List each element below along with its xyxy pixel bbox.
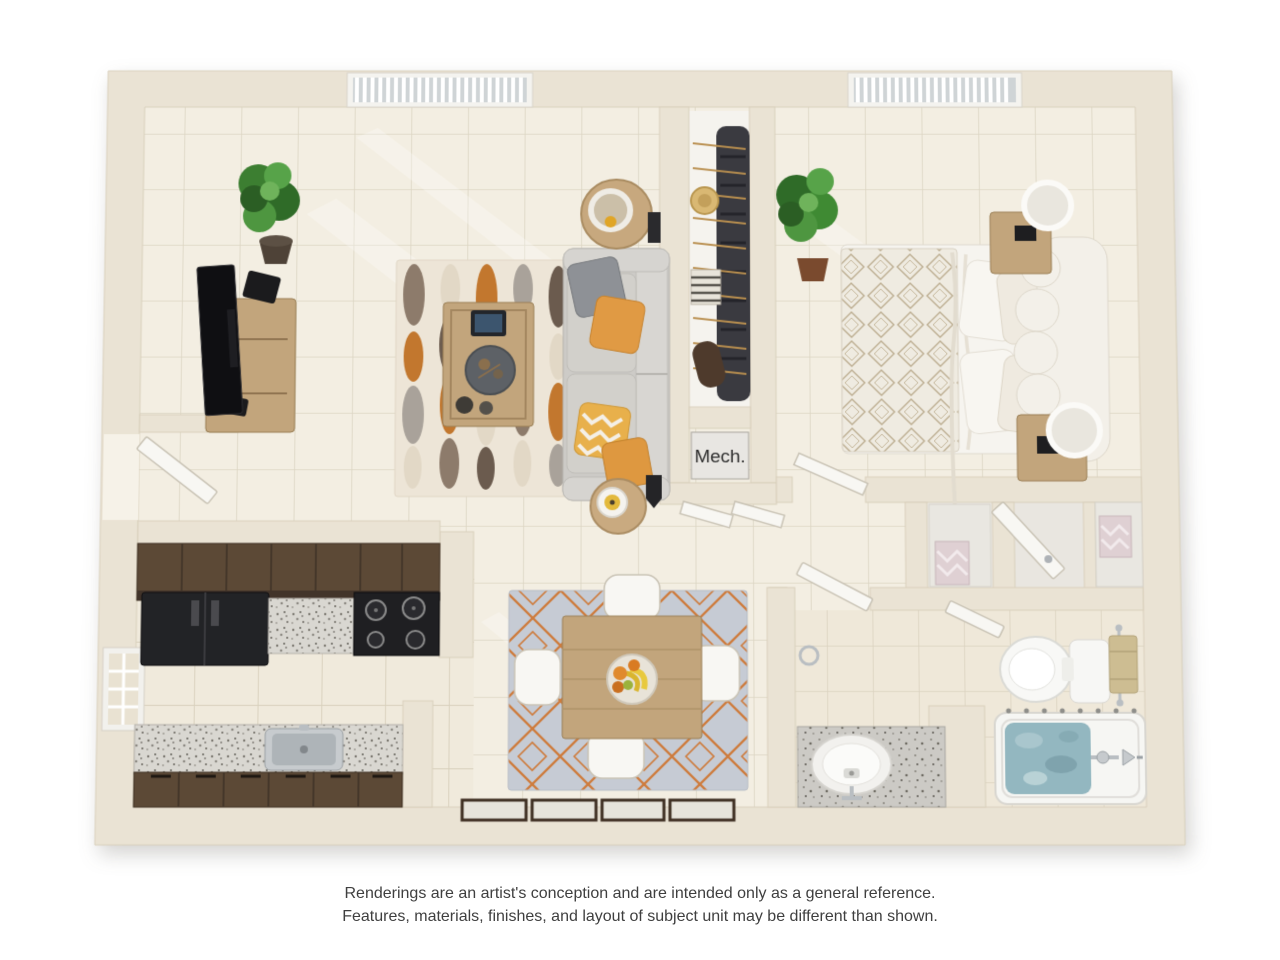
toilet-tank: [1069, 640, 1110, 703]
drum-lamp: [1048, 405, 1100, 456]
refrigerator: [141, 592, 269, 665]
side-table-top: [581, 180, 652, 249]
drum-lamp: [1024, 182, 1072, 228]
closet-bottom-wall: [660, 483, 777, 504]
hall-stub-3: [1083, 502, 1096, 590]
folded-towels: [1099, 516, 1131, 557]
floor-plan-page: Mech.: [0, 0, 1280, 960]
disclaimer: Renderings are an artist's conception an…: [0, 882, 1280, 928]
bathtub: [995, 708, 1147, 804]
bedroom-window: [848, 73, 1022, 107]
bath-water: [1005, 723, 1092, 794]
dining-chair-top: [604, 575, 660, 620]
entry-doorway-opening: [102, 434, 139, 520]
orange-pillow: [589, 295, 647, 355]
side-table-bottom: [590, 479, 645, 534]
dining-table: [562, 616, 702, 738]
disclaimer-line-2: Features, materials, finishes, and layou…: [0, 905, 1280, 928]
sofa: [563, 249, 670, 501]
folded-clothes: [691, 270, 721, 305]
vase-small: [479, 401, 493, 415]
kitchen-return-top: [439, 532, 473, 658]
tv: [197, 265, 243, 416]
kitchen-window: [102, 648, 145, 731]
mech-closet: Mech.: [691, 432, 748, 479]
linen-closet-1: [929, 504, 991, 586]
counter-top: [268, 598, 354, 653]
tan-towel: [1109, 636, 1138, 693]
lower-cabinets: [133, 772, 402, 807]
phone: [1015, 226, 1037, 241]
vanity: [797, 727, 945, 807]
dining-bath-wall: [767, 588, 796, 808]
closet-divider: [689, 407, 750, 428]
living-room-window: [347, 73, 533, 107]
bedroom-wall-b: [865, 477, 1141, 502]
floor-plan-svg: Mech.: [0, 24, 1280, 870]
upper-cabinets: [137, 543, 440, 600]
dining-chair-left: [515, 650, 561, 705]
kitchen-top-wall: [138, 521, 440, 546]
folded-towels: [935, 541, 969, 584]
kitchen-return-bottom: [402, 701, 433, 807]
bath-wall-b: [870, 588, 1143, 611]
toilet: [1000, 637, 1110, 703]
lattice-duvet: [841, 249, 959, 452]
fruit-bowl: [607, 654, 657, 703]
coffee-table: [443, 302, 534, 426]
mech-label: Mech.: [694, 446, 745, 467]
kitchen-sink: [265, 725, 343, 771]
lower-counter: [134, 725, 403, 775]
floor-lamp: [648, 212, 661, 243]
floor-plan-rendering: Mech.: [0, 24, 1280, 870]
bedroom-wall-a: [776, 477, 792, 502]
range: [354, 592, 440, 655]
linen-closet-2: [1095, 502, 1143, 586]
vase: [456, 396, 474, 413]
closet-wall-right: [749, 107, 776, 483]
disclaimer-line-1: Renderings are an artist's conception an…: [0, 882, 1280, 905]
hall-stub-1: [905, 502, 928, 590]
